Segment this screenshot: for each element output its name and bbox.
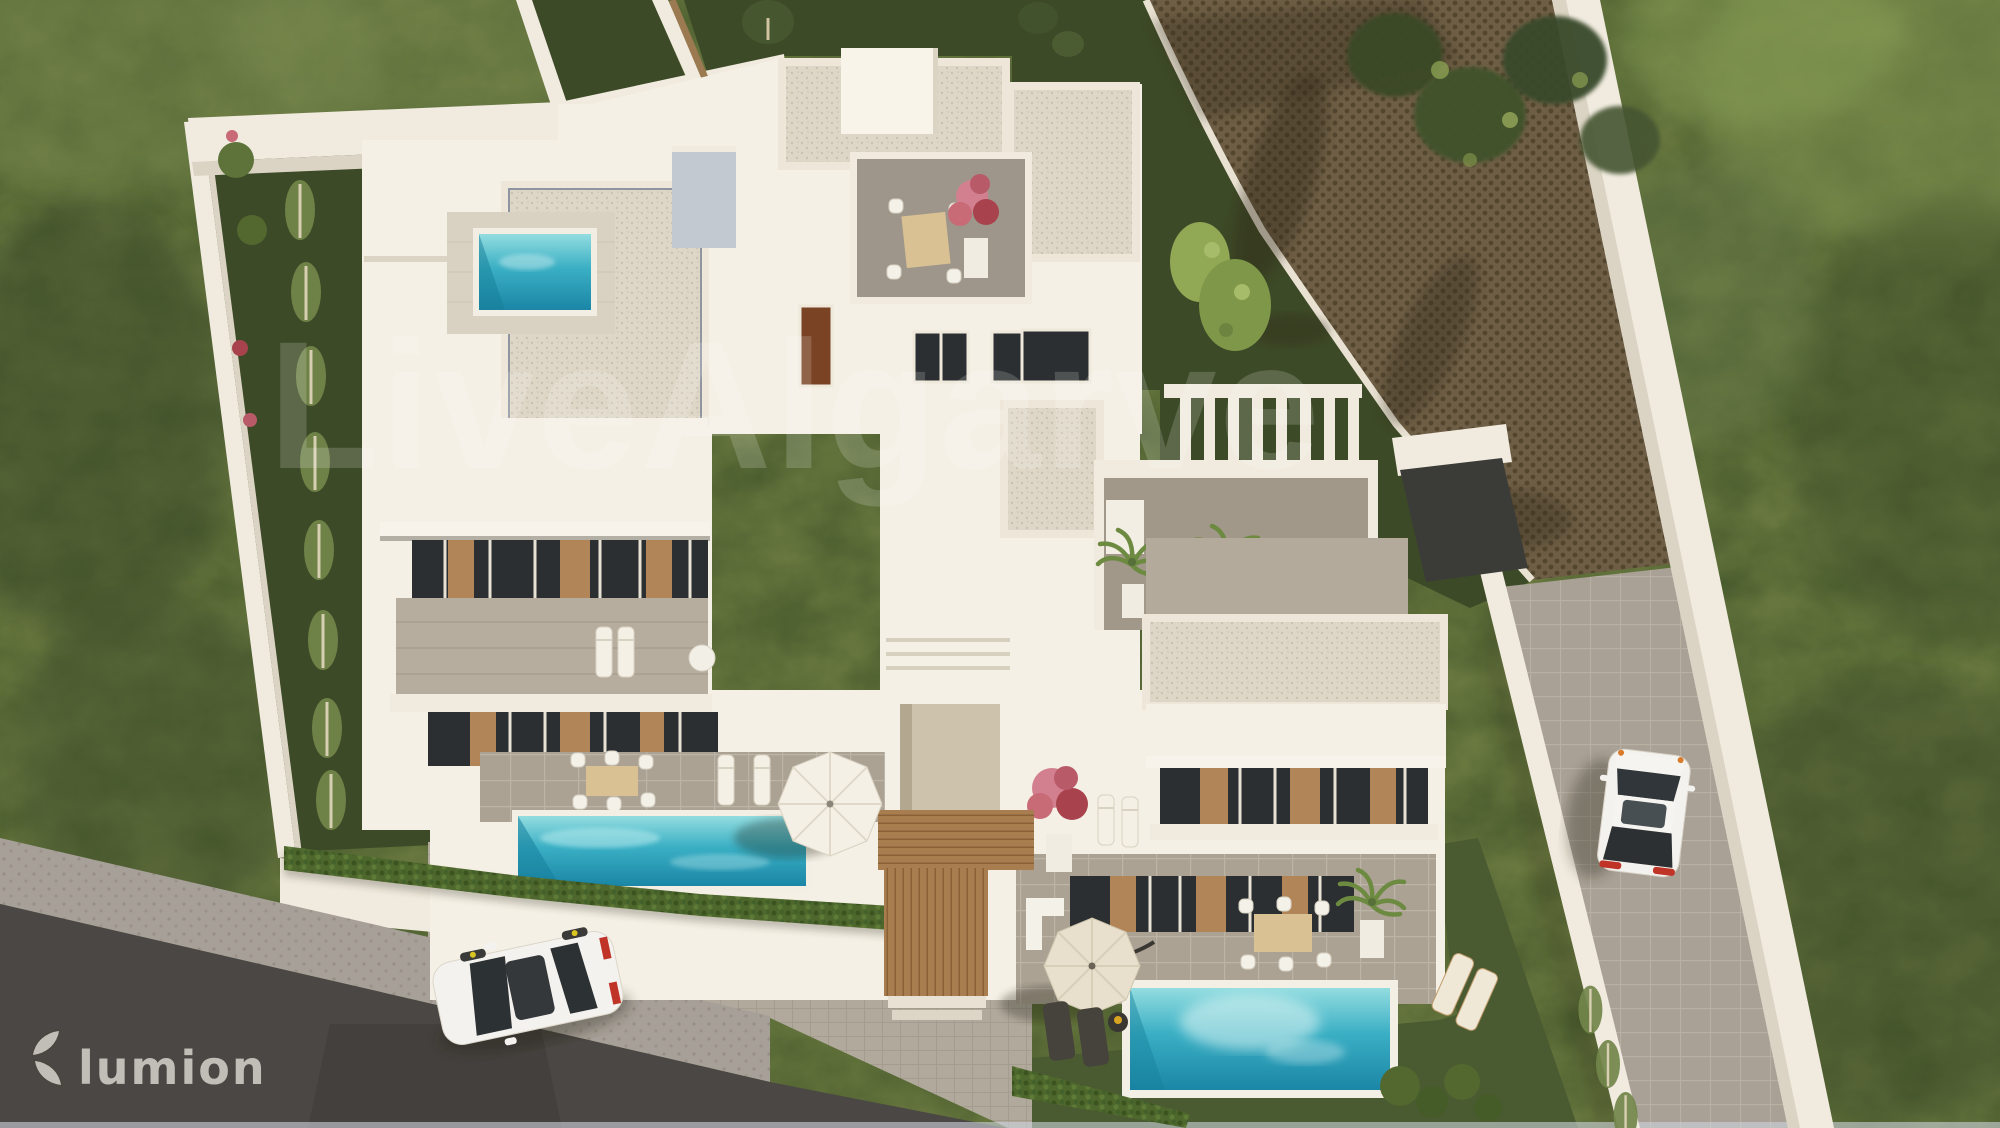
awning	[380, 522, 710, 536]
patio-dining-table	[1254, 914, 1312, 952]
villa-left-upper-balcony	[390, 540, 715, 712]
lumion-wordmark: lumion	[78, 1041, 267, 1095]
dining-table	[586, 766, 638, 796]
central-entrance	[884, 626, 1012, 816]
outdoor-counter	[1026, 916, 1042, 950]
aerial-render: LiveAlgarve lumion	[0, 0, 2000, 1128]
entrance-ramp	[900, 704, 1000, 816]
roof-terrace-top	[850, 152, 1032, 304]
watermark: LiveAlgarve	[268, 303, 1322, 507]
balcony-table	[689, 645, 715, 671]
terrace-dining-table	[901, 212, 950, 268]
stepped-volume	[672, 152, 736, 248]
pool-right	[1122, 980, 1398, 1098]
render-canvas: LiveAlgarve lumion	[0, 0, 2000, 1128]
villa-right-balcony	[1150, 768, 1438, 840]
villa-right-roof	[1150, 622, 1440, 702]
upper-deck	[1146, 538, 1408, 618]
